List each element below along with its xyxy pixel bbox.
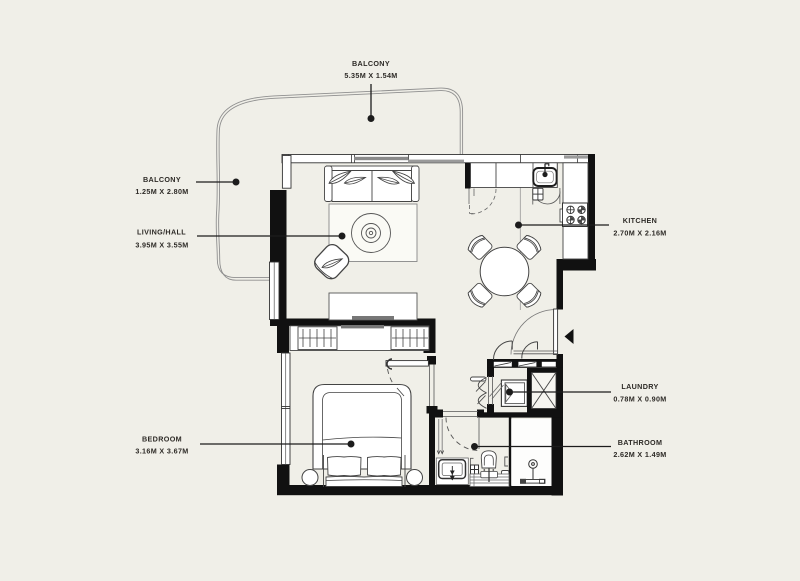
- svg-text:BEDROOM: BEDROOM: [142, 435, 182, 444]
- svg-text:KITCHEN: KITCHEN: [623, 216, 657, 225]
- svg-text:BATHROOM: BATHROOM: [618, 438, 663, 447]
- svg-text:3.16M X 3.67M: 3.16M X 3.67M: [135, 447, 188, 456]
- svg-text:2.62M X 1.49M: 2.62M X 1.49M: [613, 450, 666, 459]
- svg-text:BALCONY: BALCONY: [143, 175, 181, 184]
- svg-text:0.78M X 0.90M: 0.78M X 0.90M: [613, 395, 666, 404]
- svg-text:3.95M X 3.55M: 3.95M X 3.55M: [135, 241, 188, 250]
- svg-text:1.25M X 2.80M: 1.25M X 2.80M: [135, 187, 188, 196]
- svg-text:5.35M X 1.54M: 5.35M X 1.54M: [344, 71, 397, 80]
- svg-text:BALCONY: BALCONY: [352, 59, 390, 68]
- svg-text:LIVING/HALL: LIVING/HALL: [137, 228, 186, 237]
- svg-text:LAUNDRY: LAUNDRY: [621, 382, 658, 391]
- svg-text:2.70M X 2.16M: 2.70M X 2.16M: [613, 229, 666, 238]
